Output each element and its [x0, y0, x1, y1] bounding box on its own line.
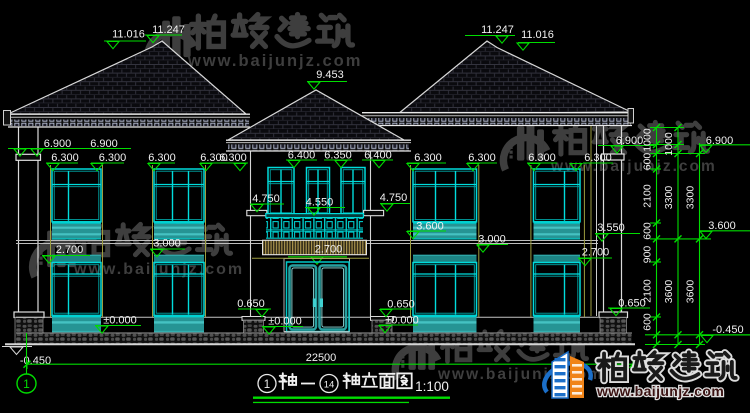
svg-text:www.baijunjz.com: www.baijunjz.com [550, 158, 717, 175]
svg-text:9.453: 9.453 [316, 69, 344, 81]
svg-text:14: 14 [324, 380, 335, 391]
svg-text:-0.450: -0.450 [20, 355, 51, 367]
svg-text:3.550: 3.550 [597, 222, 625, 234]
svg-text:2100: 2100 [642, 279, 654, 303]
svg-text:3.600: 3.600 [708, 220, 736, 232]
svg-text:4.750: 4.750 [252, 193, 280, 205]
svg-text:11.016: 11.016 [112, 29, 145, 41]
svg-text:±0.000: ±0.000 [103, 315, 137, 327]
svg-text:11.247: 11.247 [152, 24, 185, 36]
svg-text:2.700: 2.700 [582, 247, 610, 259]
svg-text:6.300: 6.300 [99, 152, 127, 164]
svg-text:600: 600 [642, 222, 654, 240]
svg-text:6.300: 6.300 [414, 152, 442, 164]
svg-text:3300: 3300 [663, 186, 675, 210]
svg-text:1000: 1000 [642, 128, 654, 152]
svg-text:www.baijunjz.com: www.baijunjz.com [596, 383, 724, 399]
svg-text:22500: 22500 [306, 352, 337, 364]
svg-text:3.000: 3.000 [478, 234, 506, 246]
svg-text:www.baijunjz.com: www.baijunjz.com [187, 52, 362, 70]
svg-text:1:100: 1:100 [415, 379, 449, 394]
svg-text:600: 600 [642, 153, 654, 171]
svg-text:3300: 3300 [685, 186, 697, 210]
svg-text:11.247: 11.247 [481, 24, 514, 36]
svg-text:6.300: 6.300 [528, 152, 556, 164]
svg-text:3600: 3600 [663, 280, 675, 304]
svg-text:6.300: 6.300 [148, 152, 176, 164]
svg-text:600: 600 [642, 313, 654, 331]
svg-text:1000: 1000 [663, 132, 675, 156]
svg-text:11.016: 11.016 [521, 29, 554, 41]
svg-text:1: 1 [264, 379, 270, 391]
svg-text:2.700: 2.700 [56, 244, 84, 256]
svg-text:4.750: 4.750 [380, 192, 408, 204]
svg-text:3.000: 3.000 [153, 238, 181, 250]
svg-text:3600: 3600 [685, 280, 697, 304]
svg-text:±0.000: ±0.000 [268, 316, 302, 328]
svg-text:-0.450: -0.450 [712, 324, 743, 336]
svg-text:6.300: 6.300 [468, 152, 496, 164]
svg-text:6.300: 6.300 [51, 152, 79, 164]
svg-text:0.650: 0.650 [237, 298, 265, 310]
svg-text:6.300: 6.300 [584, 152, 612, 164]
svg-text:1: 1 [23, 377, 30, 391]
svg-text:6.300: 6.300 [219, 152, 247, 164]
svg-text:4.550: 4.550 [306, 197, 334, 209]
svg-text:2100: 2100 [642, 184, 654, 208]
svg-text:2.700: 2.700 [315, 243, 343, 255]
svg-text:900: 900 [642, 246, 654, 264]
